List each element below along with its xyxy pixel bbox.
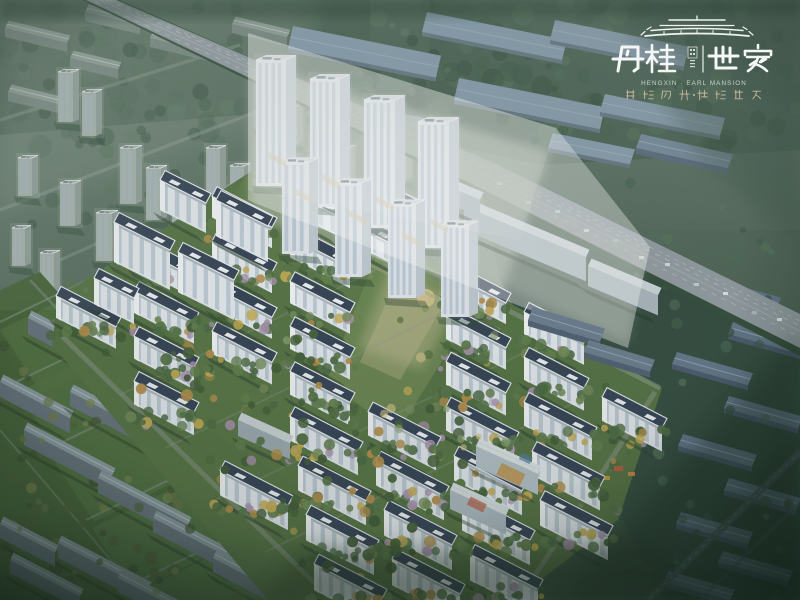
svg-text:HENGXIN · EARL MANSION: HENGXIN · EARL MANSION: [641, 80, 747, 87]
